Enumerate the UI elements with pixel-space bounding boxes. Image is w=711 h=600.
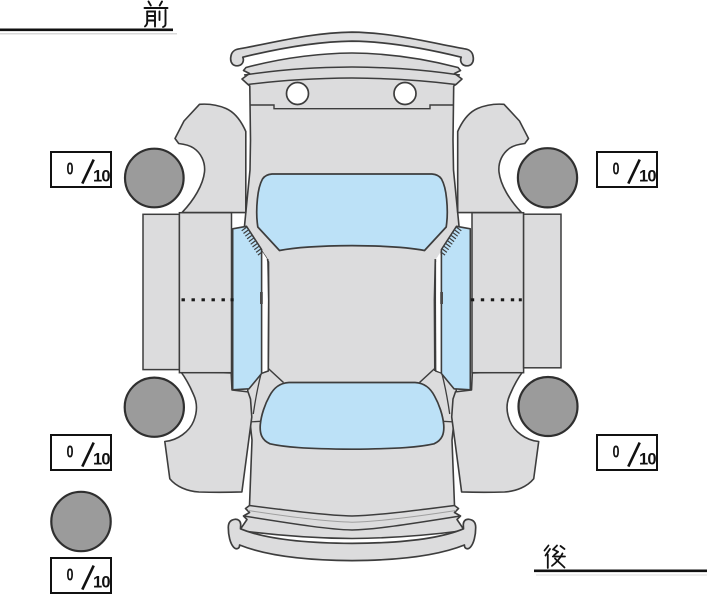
svg-text:0: 0 xyxy=(613,159,620,179)
svg-text:0: 0 xyxy=(67,442,74,462)
svg-text:10: 10 xyxy=(93,574,110,592)
svg-text:10: 10 xyxy=(639,168,656,186)
svg-text:10: 10 xyxy=(93,451,110,469)
svg-text:10: 10 xyxy=(639,451,656,469)
svg-text:0: 0 xyxy=(67,565,74,585)
svg-text:0: 0 xyxy=(613,442,620,462)
svg-text:0: 0 xyxy=(67,159,74,179)
svg-text:10: 10 xyxy=(93,168,110,186)
